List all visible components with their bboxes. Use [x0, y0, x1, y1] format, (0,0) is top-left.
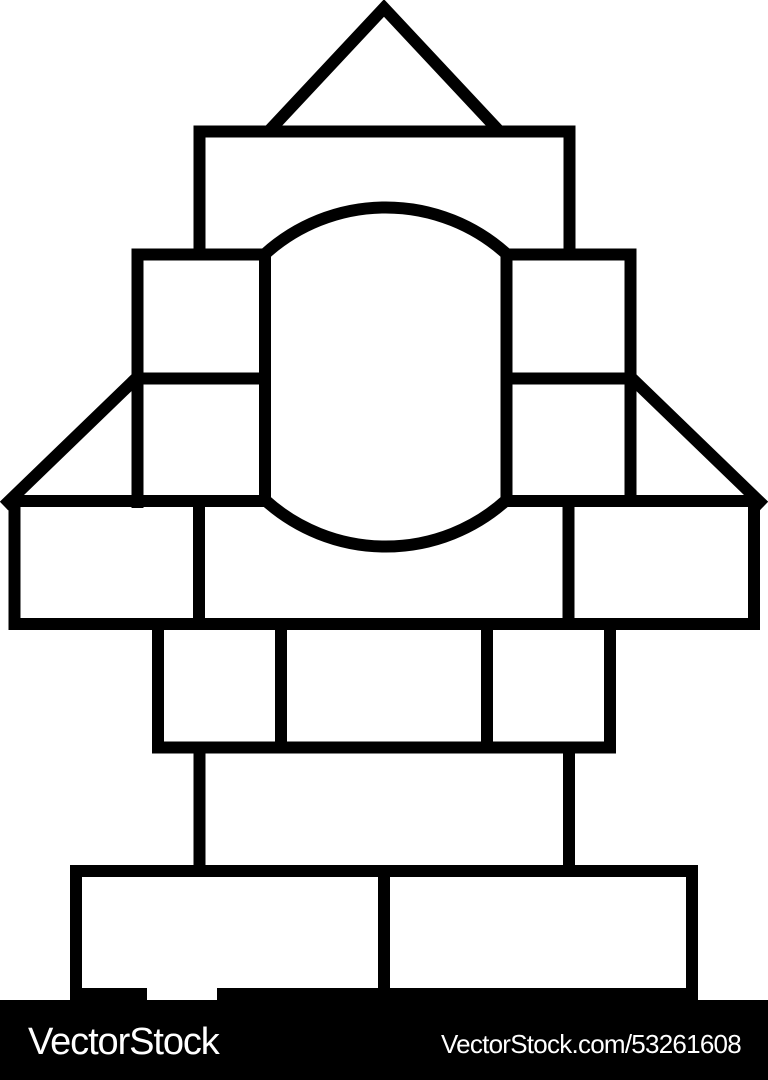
- svg-text:VectorStock: VectorStock: [28, 1021, 221, 1063]
- svg-text:VectorStock.com/53261608: VectorStock.com/53261608: [441, 1029, 741, 1059]
